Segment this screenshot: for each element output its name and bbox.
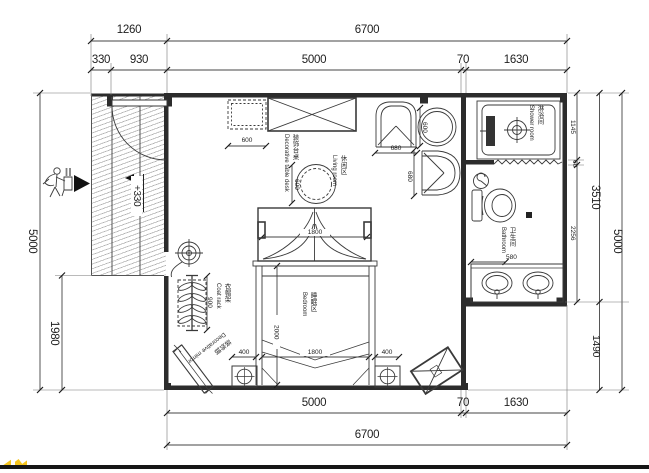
- sink-right-icon: [523, 272, 553, 299]
- room-label-bedroom: 睡眠区 Bedroom: [300, 292, 316, 344]
- room-label-living: 休闲区 Living room: [330, 155, 346, 237]
- nightstand-right: [375, 366, 400, 387]
- armchair-top: [376, 102, 416, 147]
- console-table-crossed: [268, 98, 356, 131]
- room-label-living-zh: 休闲区: [338, 155, 346, 237]
- dim-right-60: 60: [571, 153, 578, 175]
- dim-top-930: 930: [109, 55, 169, 66]
- label-coat-rack: 衣帽架 Coat rack: [214, 283, 230, 335]
- dim-bottom-5000: 5000: [284, 398, 344, 409]
- door-swing-arc: [112, 106, 166, 160]
- dim-right-1145: 1145: [569, 107, 576, 147]
- floorplan-canvas: 1260 6700 330 930 5000 70 1630 5000 1980…: [0, 0, 649, 473]
- dim-right-3510: 3510: [589, 167, 601, 227]
- dim-bottom-1630: 1630: [486, 398, 546, 409]
- floor-drain-icon: [526, 212, 532, 218]
- room-label-bedroom-en: Bedroom: [300, 292, 308, 344]
- dim-bed-1800: 1800: [300, 349, 330, 356]
- bottom-bar: [0, 465, 649, 469]
- entry-arrow-icon: [74, 175, 90, 192]
- dim-left-5000: 5000: [26, 211, 38, 271]
- dim-top-6700: 6700: [337, 25, 397, 36]
- room-label-bedroom-zh: 睡眠区: [308, 292, 316, 344]
- dim-armchair2-680: 680: [406, 158, 413, 194]
- dim-nightstand-400-right: 400: [374, 349, 400, 356]
- armchair-side: [422, 151, 460, 195]
- dim-top-1260: 1260: [99, 25, 159, 36]
- shower-fixture: [486, 116, 495, 146]
- label-coat-rack-en: Coat rack: [214, 283, 222, 335]
- room-label-bathroom-en: Bathroom: [499, 227, 507, 287]
- dim-bed-2000: 2000: [273, 315, 280, 349]
- walls: [91, 93, 567, 390]
- dim-right-5000: 5000: [611, 211, 623, 271]
- porch-outline: [92, 94, 165, 276]
- level-entry: +330: [131, 176, 142, 216]
- console-cabinet: [228, 100, 266, 129]
- room-label-bathroom: 卫生间 Bathroom: [499, 227, 515, 287]
- entry-person-icon: [43, 168, 72, 197]
- dim-cabinet-600: 600: [227, 137, 267, 144]
- dim-top-70: 70: [433, 55, 493, 66]
- coat-rack: [178, 276, 207, 331]
- dim-right-1490: 1490: [590, 321, 602, 371]
- nightstand-left: [232, 366, 257, 387]
- label-decor-table-en: Decorative table desk: [282, 134, 290, 218]
- dim-top-1630: 1630: [486, 55, 546, 66]
- dim-bottom-6700: 6700: [337, 430, 397, 441]
- dim-right-2256: 2256: [569, 213, 576, 253]
- spiral-ornament-icon: [171, 239, 203, 277]
- paper-roll-icon: [474, 173, 489, 189]
- room-label-shower-zh: 淋浴间: [535, 105, 543, 163]
- dim-canopy-1800: 1800: [300, 229, 330, 236]
- label-decor-table: 装饰台桌 Decorative table desk: [282, 134, 298, 218]
- dim-left-1980: 1980: [48, 303, 60, 363]
- room-label-bathroom-zh: 卫生间: [507, 227, 515, 287]
- label-decor-table-zh: 装饰台桌: [290, 134, 298, 218]
- dim-coatrack-900: 900: [206, 288, 213, 316]
- room-label-shower-en: Shower room: [527, 105, 535, 163]
- toilet-icon: [472, 189, 516, 222]
- dim-top-5000: 5000: [284, 55, 344, 66]
- room-label-shower: 淋浴间 Shower room: [527, 105, 543, 163]
- dim-nightstand-400-left: 400: [231, 349, 257, 356]
- dim-armchair-680: 680: [376, 145, 416, 152]
- dim-table-600: 600: [421, 113, 428, 141]
- label-coat-rack-zh: 衣帽架: [222, 283, 230, 335]
- dim-bottom-70: 70: [433, 398, 493, 409]
- room-label-living-en: Living room: [330, 155, 338, 237]
